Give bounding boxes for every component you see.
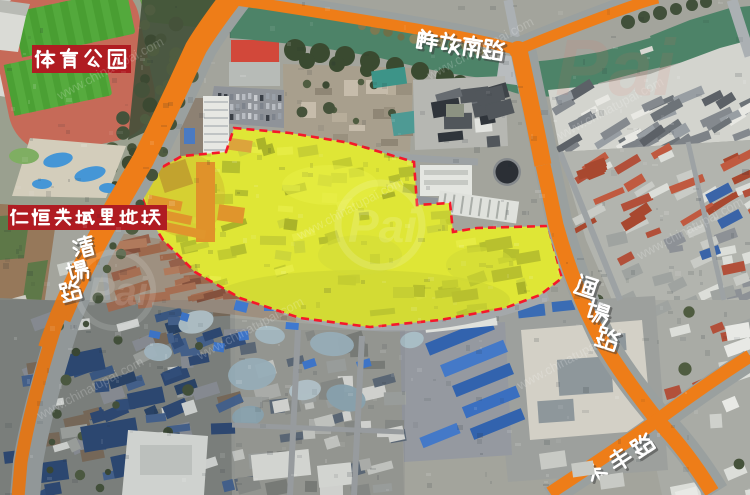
svg-text:Pai: Pai xyxy=(88,270,149,314)
svg-text:Pai: Pai xyxy=(555,23,677,112)
